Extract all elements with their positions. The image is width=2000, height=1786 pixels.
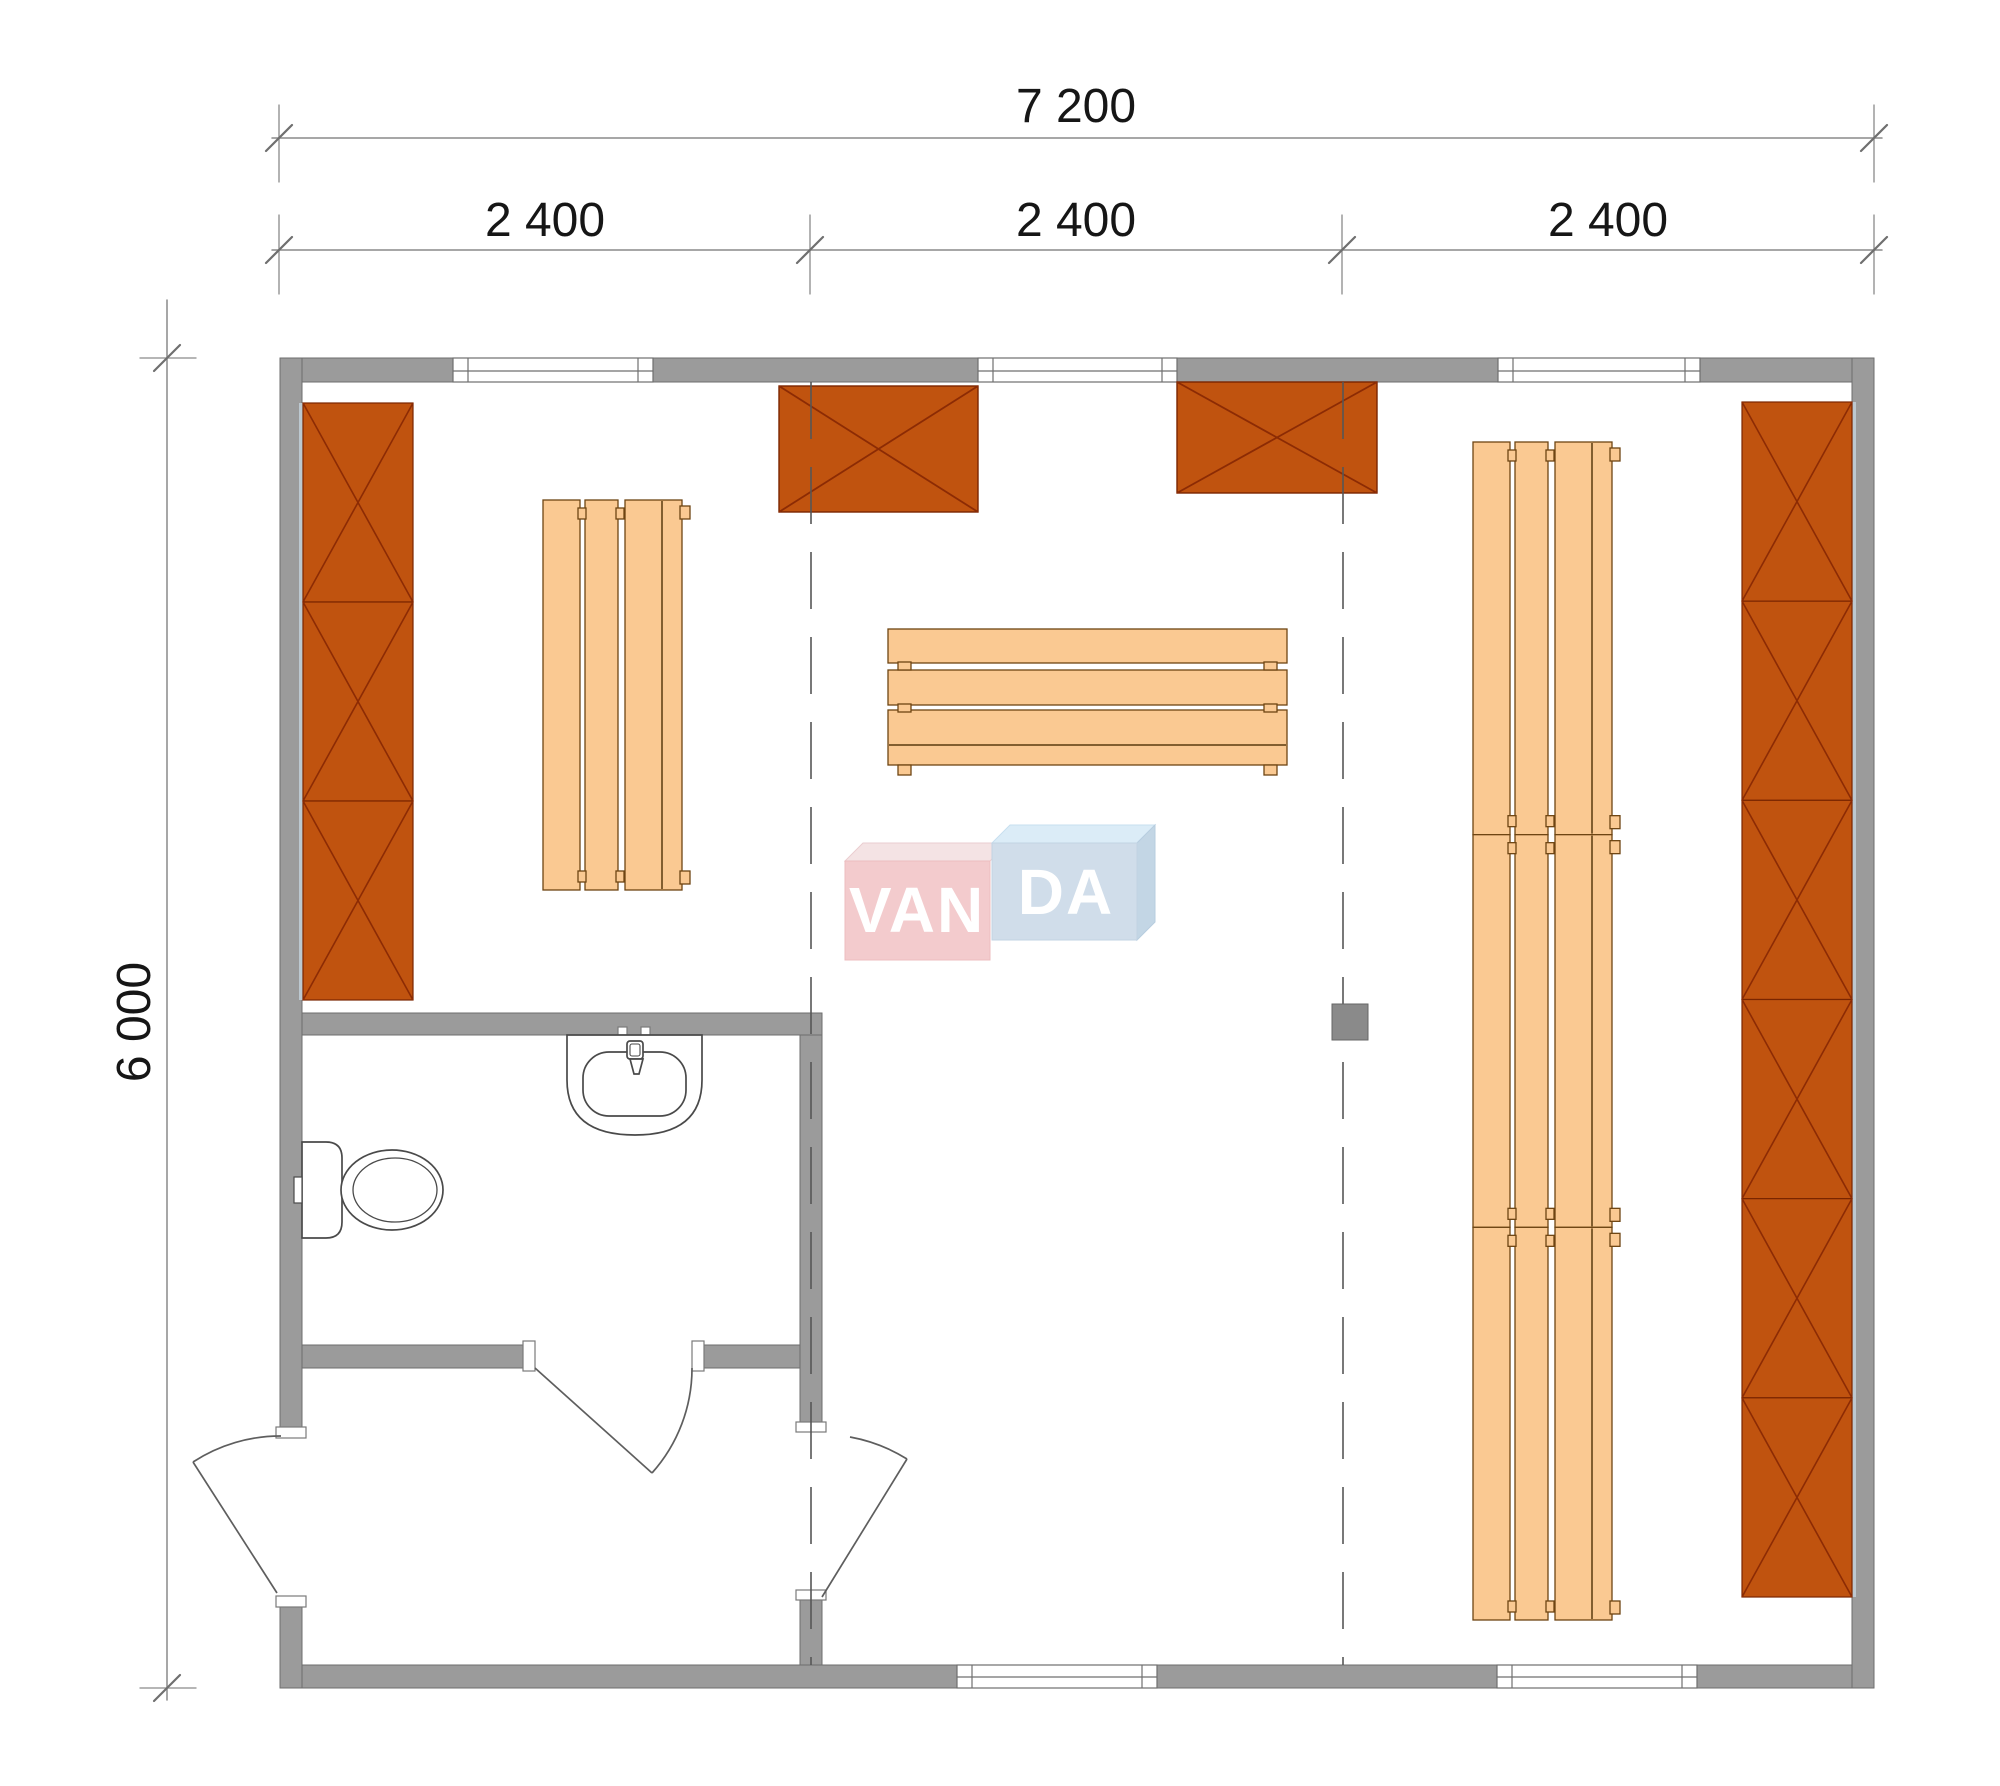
basin-supply-right [641,1027,650,1035]
watermark-pink-top-face [845,843,1008,861]
bench-lug [1508,843,1516,854]
floor-plan-canvas: 7 200 2 400 2 400 2 400 6 000 [0,0,2000,1786]
toilet-tank [302,1142,342,1238]
bench-left [543,500,690,890]
floor-plan-drawing: 7 200 2 400 2 400 2 400 6 000 [0,0,2000,1786]
bench-lug [1546,1235,1554,1246]
column [1332,1004,1368,1040]
wall-left-upper [280,358,302,1427]
washroom-jamb-left [523,1341,535,1371]
bench-run-right [1473,442,1620,1620]
wall-top-2 [653,358,978,382]
bench-slat [1473,1227,1510,1620]
bench-slat [1515,442,1548,835]
bench-slat [1473,835,1510,1228]
bench-lug [1508,816,1516,827]
bench-slat [888,670,1287,705]
watermark-text-left: VAN [849,874,985,946]
watermark-blue-side-face [1137,825,1155,940]
bench-lug [1508,1235,1516,1246]
bench-slat [1473,442,1510,835]
bench-slat [1555,442,1612,835]
bench-slat [888,710,1287,765]
bench-lug [578,508,586,519]
washroom-jamb-right [692,1341,704,1371]
window-bottom-right [1497,1665,1697,1688]
bench-lug [1610,816,1620,829]
bench-lug [1546,816,1554,827]
bench-slat [1515,835,1548,1228]
cabinet-run-right [1742,402,1856,1597]
bench-lug [616,871,624,882]
wall-top-1 [280,358,453,382]
entrance-jamb-bottom [276,1596,306,1607]
watermark-text-right: DA [1018,856,1114,928]
wall-left-lower [280,1607,302,1688]
bench-slat [543,500,580,890]
washroom-bottom-wall-left [302,1345,523,1368]
bench-slat [1555,835,1612,1228]
wall-bottom-3 [1697,1665,1874,1688]
dim-label-total-width: 7 200 [1016,80,1136,133]
bench-slat [1515,1227,1548,1620]
tap-inner [630,1044,640,1056]
bench-center [888,629,1287,775]
bench-lug [1610,1233,1620,1246]
wall-bottom-2 [1157,1665,1497,1688]
bench-lug [680,506,690,519]
cabinet-run-left [299,403,413,1000]
window-top-left [453,358,653,382]
washbasin [567,1035,702,1135]
bench-lug [1264,704,1277,712]
bench-lug [1264,662,1277,670]
window-top-right [1498,358,1700,382]
bench-slat [585,500,618,890]
window-bottom-center [957,1665,1157,1688]
vanda-watermark: VAN DA [845,825,1155,960]
washroom-bottom-wall-right [703,1345,800,1368]
watermark-blue-top-face [992,825,1155,843]
washroom-top-wall [302,1013,822,1035]
dim-label-module-2: 2 400 [1016,194,1136,247]
bench-lug [1546,843,1554,854]
wall-top-4 [1700,358,1874,382]
window-top-center [978,358,1177,382]
wall-top-3 [1177,358,1498,382]
bench-lug [1508,1208,1516,1219]
wall-bottom-1 [280,1665,957,1688]
bench-foot [898,765,911,775]
bench-slat [625,500,682,890]
toilet-rim [353,1158,437,1222]
bench-lug [898,704,911,712]
bench-lug [898,662,911,670]
bench-lug [1610,1208,1620,1221]
bench-lug [680,871,690,884]
structural-column [1332,1004,1368,1040]
bench-lug [1546,1208,1554,1219]
bench-lug [1610,841,1620,854]
bench-slat [888,629,1287,663]
bench-lug [1610,1601,1620,1614]
bench-lug [1508,450,1516,461]
bench-slat [1555,1227,1612,1620]
bench-lug [1508,1601,1516,1612]
flush-button [294,1177,302,1203]
dim-label-depth: 6 000 [108,962,161,1082]
bench-lug [1546,1601,1554,1612]
basin-supply-left [618,1027,627,1035]
bench-foot [1264,765,1277,775]
bench-lug [1546,450,1554,461]
bench-lug [578,871,586,882]
dim-label-module-3: 2 400 [1548,194,1668,247]
cabinet-shadow [299,403,303,1000]
bench-lug [1610,448,1620,461]
dim-label-module-1: 2 400 [485,194,605,247]
bench-lug [616,508,624,519]
toilet [294,1142,443,1238]
